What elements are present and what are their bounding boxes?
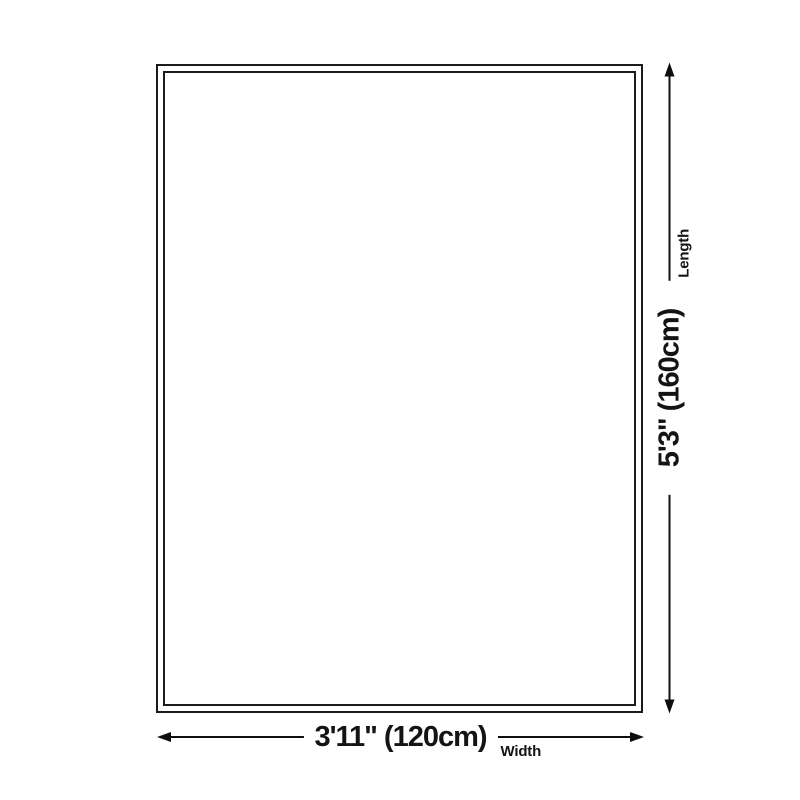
rug-inner-outline	[163, 71, 636, 706]
arrow-left-icon	[157, 732, 171, 742]
rug-outer-outline	[156, 64, 643, 713]
width-dimension-label: 3'11" (120cm) Width	[303, 718, 497, 756]
rug-dimension-diagram: 5'3" (160cm) Length 3'11" (120cm) Width	[0, 0, 800, 800]
width-axis-label: Width	[501, 744, 542, 759]
length-value: 5'3" (160cm)	[651, 281, 689, 496]
width-dimension: 3'11" (120cm) Width	[157, 724, 644, 750]
width-value: 3'11" (120cm)	[303, 718, 497, 756]
length-dimension-label: 5'3" (160cm) Length	[651, 281, 689, 496]
arrow-up-icon	[665, 63, 675, 77]
length-dimension: 5'3" (160cm) Length	[657, 63, 683, 714]
length-axis-label: Length	[677, 229, 692, 278]
arrow-down-icon	[665, 700, 675, 714]
arrow-right-icon	[630, 732, 644, 742]
